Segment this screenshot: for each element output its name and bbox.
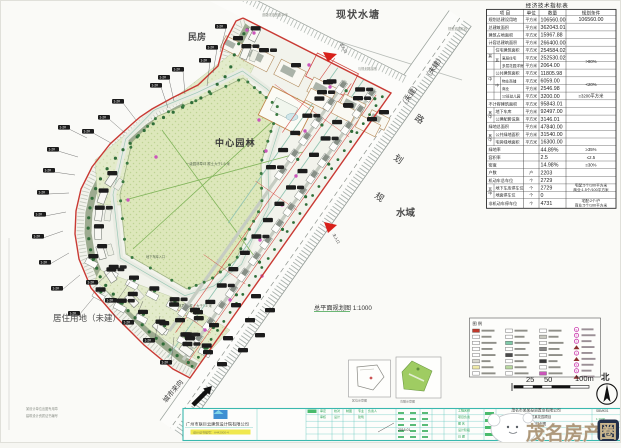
svg-text:区位示意图: 区位示意图 (352, 398, 367, 403)
svg-text:专业: 专业 (358, 408, 364, 413)
svg-text:1-2#: 1-2# (208, 46, 215, 50)
svg-text:2729: 2729 (541, 178, 553, 184)
svg-text:规划总建设用地: 规划总建设用地 (489, 16, 518, 22)
svg-text:平方米: 平方米 (525, 78, 537, 83)
svg-text:某设计单位出图专用章: 某设计单位出图专用章 (26, 406, 59, 411)
svg-text:2.5: 2.5 (541, 155, 548, 161)
svg-text:1-2#: 1-2# (217, 25, 224, 29)
svg-text:项目负责: 项目负责 (458, 414, 470, 419)
svg-text:266400.00: 266400.00 (541, 40, 566, 46)
svg-text:2203: 2203 (541, 170, 553, 176)
svg-text:≤2.5: ≤2.5 (587, 155, 596, 160)
svg-text:单位: 单位 (527, 9, 537, 16)
svg-text:负责人: 负责人 (368, 408, 377, 413)
svg-text:1-2#: 1-2# (114, 100, 121, 104)
svg-text:S: S (576, 328, 578, 332)
svg-text:民房: 民房 (188, 31, 206, 42)
svg-text:1-2#: 1-2# (39, 191, 46, 195)
svg-text:宅旁绿地面积: 宅旁绿地面积 (496, 139, 520, 145)
svg-text:95843.01: 95843.01 (541, 102, 563, 108)
svg-text:户数: 户数 (489, 169, 497, 175)
svg-text:25: 25 (526, 375, 534, 384)
svg-text:1-2#: 1-2# (201, 59, 208, 63)
svg-text:建筑设计资质证书编号: 建筑设计资质证书编号 (26, 413, 58, 418)
svg-text:设计阶段: 设计阶段 (458, 427, 470, 432)
svg-text:规划条件: 规划条件 (582, 9, 601, 16)
svg-text:1-2#: 1-2# (145, 339, 152, 343)
svg-text:106560.00: 106560.00 (541, 17, 566, 23)
svg-text:14.98%: 14.98% (541, 163, 559, 169)
svg-text:个: 个 (529, 178, 533, 183)
svg-text:经济技术指标表: 经济技术指标表 (526, 2, 569, 10)
svg-text:总建筑面积: 总建筑面积 (489, 24, 509, 30)
svg-text:S: S (576, 334, 578, 338)
svg-text:地面停车位: 地面停车位 (496, 192, 516, 198)
svg-text:密度: 密度 (489, 162, 497, 168)
svg-text:茂名房产: 茂名房产 (526, 422, 602, 444)
svg-text:S: S (576, 351, 578, 355)
svg-text:1-2#: 1-2# (45, 169, 52, 173)
svg-text:个: 个 (529, 193, 533, 198)
svg-text:2016.01: 2016.01 (398, 428, 410, 432)
svg-text:362043.01: 362043.01 (541, 25, 566, 31)
svg-text:31540.00: 31540.00 (541, 132, 563, 138)
svg-text:1-2#: 1-2# (100, 116, 107, 120)
svg-text:审核: 审核 (320, 414, 326, 419)
svg-text:其: 其 (495, 59, 499, 63)
svg-text:计容总建筑面积: 计容总建筑面积 (489, 39, 518, 45)
svg-text:道路红线宽度30米: 道路红线宽度30米 (262, 12, 289, 17)
svg-text:平方米: 平方米 (525, 140, 537, 145)
svg-text:平方米: 平方米 (525, 63, 537, 68)
svg-text:水域: 水域 (396, 207, 416, 219)
svg-text:高层住宅: 高层住宅 (502, 55, 517, 60)
svg-text:商业:1.5个/100平方米: 商业:1.5个/100平方米 (573, 187, 609, 192)
svg-text:地下车库入口: 地下车库入口 (146, 254, 165, 259)
svg-text:中: 中 (488, 77, 492, 82)
svg-text:2729: 2729 (541, 186, 553, 192)
svg-text:106560.00: 106560.00 (578, 17, 603, 23)
svg-text:平方米: 平方米 (525, 40, 537, 45)
svg-text:100m: 100m (575, 374, 594, 383)
svg-text:容积率: 容积率 (489, 154, 501, 160)
svg-text:<20%: <20% (585, 82, 596, 87)
svg-text:不计容建筑面积: 不计容建筑面积 (489, 100, 518, 106)
svg-text:44.89%: 44.89% (541, 147, 559, 153)
svg-text:S: S (576, 363, 578, 367)
svg-text:15967.88: 15967.88 (541, 33, 563, 39)
svg-text:平方米: 平方米 (525, 94, 537, 99)
svg-text:平方米: 平方米 (525, 48, 537, 53)
svg-text:茂名市某某投资置业有限公司: 茂名市某某投资置业有限公司 (511, 408, 561, 413)
svg-text:47840.00: 47840.00 (541, 124, 563, 130)
svg-text:地下车库停车位: 地下车库停车位 (496, 185, 524, 191)
svg-text:平方米: 平方米 (525, 32, 537, 37)
svg-text:>80%: >80% (585, 59, 596, 64)
svg-text:宅配:2个/户: 宅配:2个/户 (582, 198, 601, 203)
svg-text:1-2#: 1-2# (36, 213, 43, 217)
svg-text:S: S (576, 369, 578, 373)
svg-text:2064.00: 2064.00 (541, 63, 560, 69)
svg-text:非机动车停车位: 非机动车停车位 (489, 200, 518, 206)
svg-text:3200.00: 3200.00 (541, 94, 560, 100)
svg-text:254584.02: 254584.02 (541, 48, 566, 54)
svg-text:个: 个 (529, 201, 533, 206)
svg-text:≥35%: ≥35% (586, 147, 597, 152)
svg-text:平方米: 平方米 (525, 55, 537, 60)
svg-text:6059.00: 6059.00 (541, 79, 560, 85)
svg-text:建筑: 建筑 (358, 414, 364, 419)
svg-text:平方米: 平方米 (525, 117, 537, 122)
svg-text:12班幼儿园: 12班幼儿园 (502, 94, 521, 99)
svg-text:公建配套设施: 公建配套设施 (496, 116, 520, 122)
svg-text:1-2#: 1-2# (60, 126, 67, 130)
svg-text:与规划路接驳: 与规划路接驳 (358, 66, 378, 71)
svg-text:1-2#: 1-2# (49, 148, 56, 152)
svg-text:制图: 制图 (346, 408, 352, 413)
svg-text:机动车总车位: 机动车总车位 (489, 177, 514, 183)
svg-text:物业商铺: 物业商铺 (502, 78, 517, 83)
svg-text:中: 中 (488, 191, 492, 196)
svg-text:平方米: 平方米 (525, 17, 537, 22)
svg-text:其: 其 (488, 55, 492, 59)
svg-text:设计证书编号：A442000-4: 设计证书编号：A442000-4 (193, 430, 229, 435)
svg-text:广州市联巨云建筑设计院有限公司: 广州市联巨云建筑设计院有限公司 (186, 421, 249, 428)
svg-text:圈: 圈 (599, 422, 617, 442)
svg-text:1-2#: 1-2# (34, 235, 41, 239)
svg-text:鸟瞰示意图: 鸟瞰示意图 (400, 399, 415, 404)
svg-text:公共绿地面积: 公共绿地面积 (496, 131, 520, 137)
svg-text:户: 户 (529, 170, 533, 175)
svg-text:1-2#: 1-2# (162, 361, 169, 365)
svg-text:平方米: 平方米 (525, 101, 537, 106)
svg-text:设计: 设计 (334, 414, 340, 419)
svg-text:平方米: 平方米 (525, 132, 537, 137)
svg-text:审定: 审定 (320, 408, 326, 413)
svg-text:≤30%: ≤30% (586, 163, 597, 168)
svg-text:平方米: 平方米 (525, 124, 537, 129)
svg-text:中: 中 (495, 83, 499, 88)
svg-text:工程名称: 工程名称 (458, 408, 470, 413)
svg-text:图 例: 图 例 (473, 320, 483, 327)
svg-text:总平面规划图 1:1000: 总平面规划图 1:1000 (314, 304, 372, 312)
svg-text:绿地率: 绿地率 (489, 146, 501, 152)
svg-text:3146.01: 3146.01 (541, 117, 560, 123)
svg-text:图 名: 图 名 (458, 421, 465, 426)
svg-text:50: 50 (544, 375, 552, 384)
svg-text:1-2#: 1-2# (84, 130, 91, 134)
svg-text:1-2#: 1-2# (107, 299, 114, 303)
svg-text:规划道路红线: 规划道路红线 (448, 26, 468, 31)
svg-text:0: 0 (541, 193, 544, 199)
svg-text:商业: 商业 (502, 86, 510, 91)
svg-text:居住用地（未建）: 居住用地（未建） (53, 313, 121, 323)
svg-text:1-2#: 1-2# (88, 281, 95, 285)
svg-text:1-2#: 1-2# (124, 321, 131, 325)
svg-text:个: 个 (529, 186, 533, 191)
svg-text:校对: 校对 (334, 408, 340, 413)
svg-text:92497.00: 92497.00 (541, 109, 563, 115)
svg-text:SBMK01: SBMK01 (596, 409, 609, 413)
svg-text:一级园林草坪 覆土大于1.5 米: 一级园林草坪 覆土大于1.5 米 (186, 161, 231, 166)
svg-text:地下车库: 地下车库 (496, 108, 512, 114)
svg-text:现状水塘: 现状水塘 (336, 8, 380, 21)
svg-text:平方米: 平方米 (525, 86, 537, 91)
svg-text:中: 中 (488, 114, 492, 119)
svg-text:1-2#: 1-2# (174, 68, 181, 72)
svg-text:平方米: 平方米 (525, 25, 537, 30)
svg-text:商业:5个/100平方米: 商业:5个/100平方米 (575, 203, 608, 208)
svg-text:数量: 数量 (548, 9, 558, 16)
svg-text:4731: 4731 (541, 201, 553, 207)
svg-text:1-2#: 1-2# (152, 84, 159, 88)
svg-text:平方米: 平方米 (525, 109, 537, 114)
svg-text:2546.98: 2546.98 (541, 86, 560, 92)
svg-text:多层花园洋房: 多层花园洋房 (502, 63, 524, 68)
svg-text:252530.02: 252530.02 (541, 56, 566, 62)
svg-text:中: 中 (488, 137, 492, 142)
svg-text:平方米: 平方米 (525, 71, 537, 76)
svg-text:北: 北 (601, 372, 610, 382)
svg-text:住宅建筑面积: 住宅建筑面积 (496, 47, 520, 53)
svg-text:建筑占地面积: 建筑占地面积 (489, 31, 514, 37)
svg-text:1-2#: 1-2# (160, 76, 167, 80)
svg-text:11805.98: 11805.98 (541, 71, 563, 77)
svg-text:中心园林: 中心园林 (215, 137, 256, 148)
svg-text:16300.00: 16300.00 (541, 140, 563, 146)
svg-text:日 期: 日 期 (458, 434, 465, 439)
svg-text:1-2#: 1-2# (41, 261, 48, 265)
svg-text:1-2#: 1-2# (53, 287, 60, 291)
svg-text:≥3200平方米: ≥3200平方米 (579, 93, 605, 100)
svg-text:绿地总面积: 绿地总面积 (489, 123, 509, 129)
svg-text:宅配:5个/100平方米: 宅配:5个/100平方米 (575, 183, 608, 188)
svg-text:公共建筑面积: 公共建筑面积 (496, 70, 520, 76)
svg-text:S: S (576, 340, 578, 344)
